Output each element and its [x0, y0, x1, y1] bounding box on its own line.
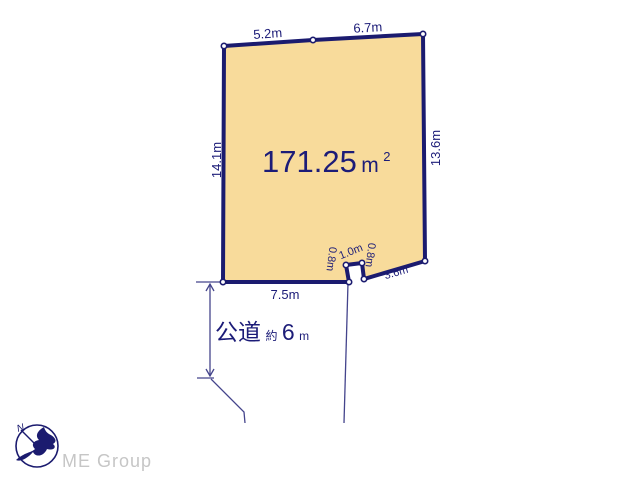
area-value: 171.25 — [262, 144, 357, 179]
brand-logo: N — [16, 422, 58, 467]
dim-label-right: 13.6m — [428, 130, 443, 166]
area-unit-superscript: 2 — [383, 149, 390, 164]
road-width-value: 6 — [282, 319, 295, 345]
vertex-dot — [221, 43, 226, 48]
road-approx: 約 — [265, 328, 277, 343]
road-label: 公道 約 6 m — [215, 319, 309, 345]
dim-label-left: 14.1m — [209, 142, 224, 178]
dim-label-top-right: 6.7m — [353, 19, 383, 35]
vertex-dot — [422, 258, 427, 263]
road-type: 公道 — [215, 319, 261, 345]
vertex-dot — [420, 31, 425, 36]
land-plot-diagram: 5.2m 6.7m 14.1m 13.6m 7.5m 0.8m 1.0m 0.8… — [0, 0, 640, 480]
brand-text: ME Group — [62, 451, 152, 471]
road-lines — [196, 282, 348, 423]
vertex-dot — [343, 262, 348, 267]
road-width-unit: m — [299, 329, 309, 343]
vertex-dot — [310, 37, 315, 42]
boundary-extension-line — [344, 283, 348, 423]
dim-label-top-left: 5.2m — [253, 25, 283, 42]
road-far-edge-line — [211, 379, 245, 423]
dim-label-bottom: 7.5m — [271, 287, 300, 302]
vertex-dot — [346, 279, 351, 284]
vertex-dot — [220, 279, 225, 284]
vertex-dot — [361, 276, 366, 281]
area-unit: m — [361, 154, 379, 177]
diagram-svg: 5.2m 6.7m 14.1m 13.6m 7.5m 0.8m 1.0m 0.8… — [0, 0, 640, 480]
